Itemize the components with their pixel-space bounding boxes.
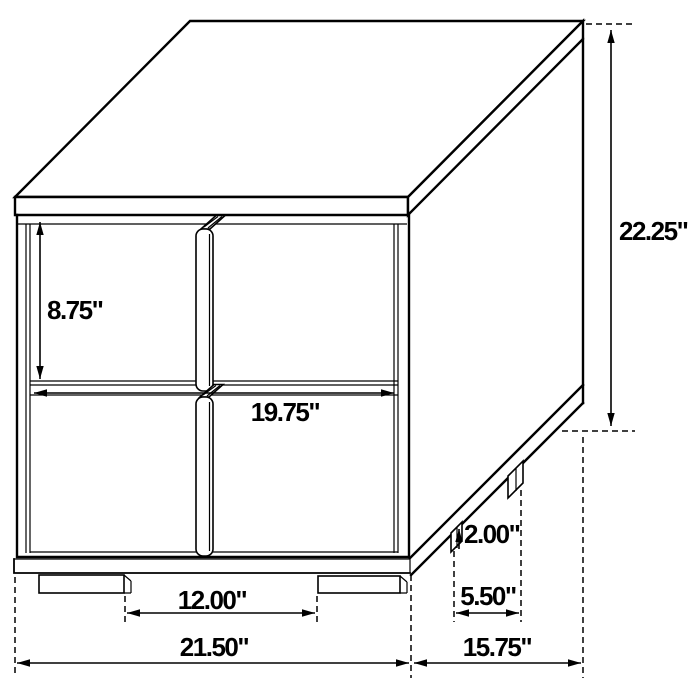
dim-drawer-height-label: 8.75" bbox=[47, 295, 103, 325]
top-front-edge bbox=[15, 197, 408, 215]
dim-overall-depth: 15.75" bbox=[414, 437, 583, 678]
nightstand-dimension-drawing: 8.75" 19.75" 22.25" 2.00" 5.50" 12.00" 2… bbox=[0, 0, 700, 700]
dim-leg-height-label: 2.00" bbox=[464, 519, 520, 549]
dim-front-leg-spacing-label: 12.00" bbox=[178, 585, 247, 615]
dim-front-leg-spacing: 12.00" bbox=[125, 585, 317, 625]
dim-side-leg-spacing-label: 5.50" bbox=[460, 581, 516, 611]
front-left-foot-side bbox=[124, 575, 131, 593]
bottom-drawer-handle bbox=[196, 397, 213, 556]
plinth-bottom bbox=[14, 559, 410, 573]
dim-overall-width-label: 21.50" bbox=[180, 632, 249, 662]
dim-drawer-width-label: 19.75" bbox=[251, 397, 320, 427]
top-drawer-handle bbox=[196, 229, 213, 391]
drawer-handles bbox=[196, 216, 225, 557]
plinth-top bbox=[14, 559, 410, 573]
front-right-foot bbox=[318, 576, 400, 593]
side-plinth-edge bbox=[411, 403, 583, 575]
front-left-foot bbox=[39, 575, 124, 593]
front-right-foot-side bbox=[400, 576, 407, 593]
dim-overall-depth-label: 15.75" bbox=[463, 632, 532, 662]
plinth bbox=[14, 559, 410, 573]
dim-overall-height-label: 22.25" bbox=[619, 216, 688, 246]
dim-overall-height: 22.25" bbox=[562, 24, 688, 431]
dim-drawer-width: 19.75" bbox=[34, 393, 394, 427]
cabinet-top bbox=[15, 21, 583, 215]
dim-side-leg-spacing: 5.50" bbox=[454, 490, 521, 622]
dim-leg-height: 2.00" bbox=[459, 519, 520, 549]
dim-drawer-height: 8.75" bbox=[40, 222, 103, 379]
dimension-drawing-canvas: 8.75" 19.75" 22.25" 2.00" 5.50" 12.00" 2… bbox=[0, 0, 700, 700]
